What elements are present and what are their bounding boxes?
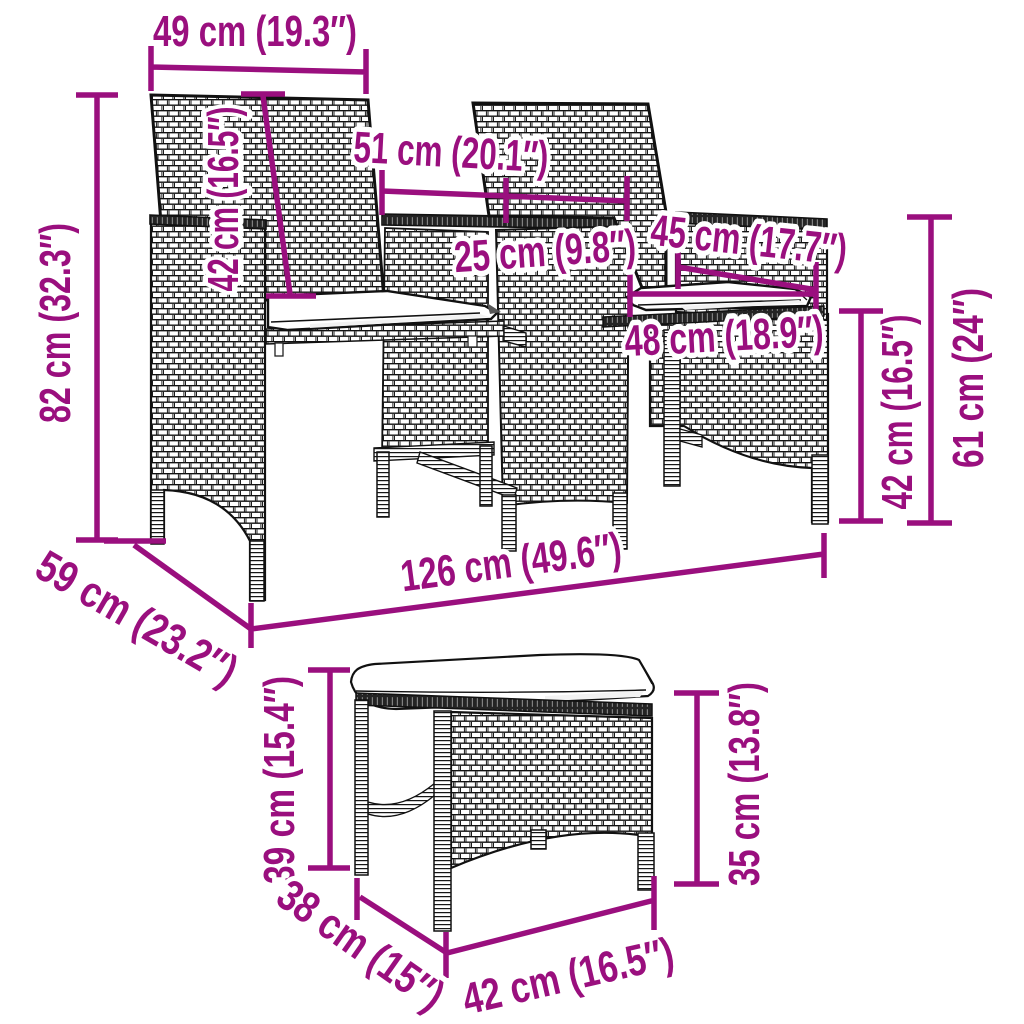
svg-text:42 cm (16.5″): 42 cm (16.5″) <box>199 107 248 292</box>
svg-text:82 cm (32.3″): 82 cm (32.3″) <box>31 223 80 423</box>
svg-text:49 cm (19.3″): 49 cm (19.3″) <box>153 7 357 56</box>
svg-text:35 cm (13.8″): 35 cm (13.8″) <box>720 682 769 886</box>
svg-text:61 cm (24″): 61 cm (24″) <box>944 288 993 468</box>
svg-text:48 cm (18.9″): 48 cm (18.9″) <box>623 307 824 366</box>
svg-text:39 cm (15.4″): 39 cm (15.4″) <box>255 676 304 884</box>
svg-text:51 cm (20.1″): 51 cm (20.1″) <box>352 123 549 182</box>
svg-text:42 cm (16.5″): 42 cm (16.5″) <box>873 315 922 510</box>
